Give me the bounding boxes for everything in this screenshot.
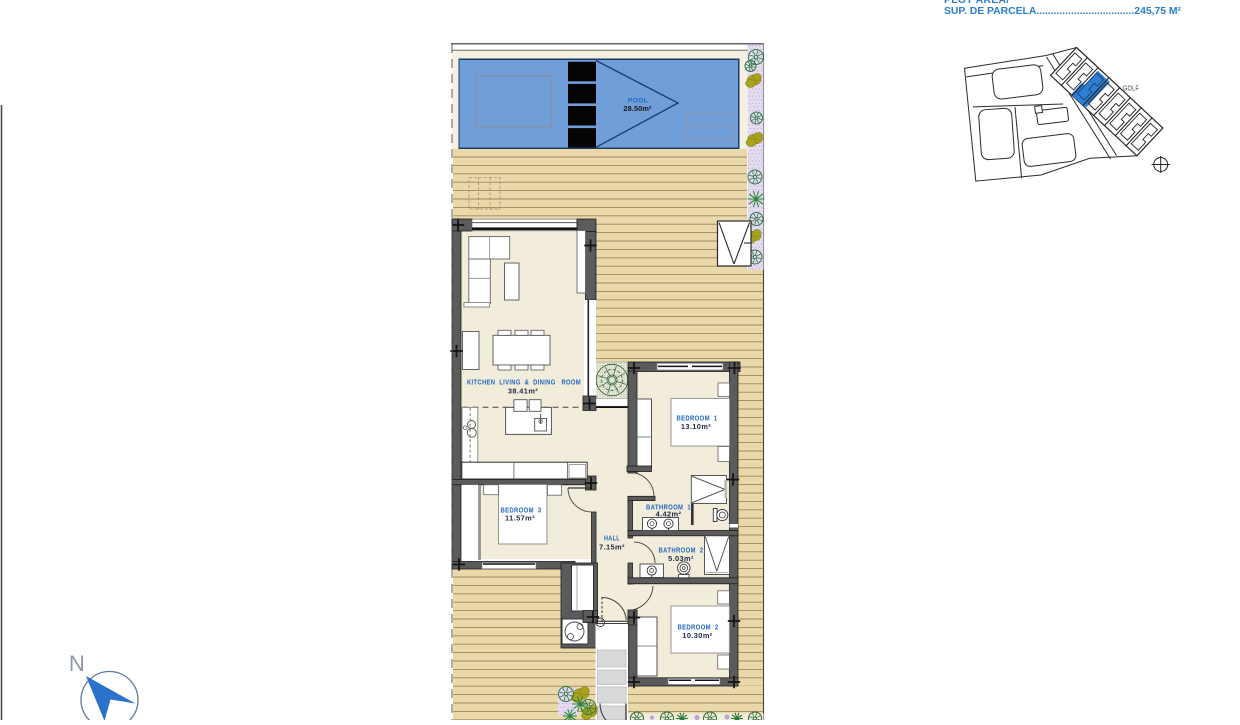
svg-text:GOLF: GOLF (1123, 86, 1139, 93)
svg-text:38.41m²: 38.41m² (508, 387, 538, 396)
svg-text:7.15m²: 7.15m² (599, 543, 625, 552)
svg-text:N: N (69, 651, 85, 676)
svg-text:28.50m²: 28.50m² (623, 104, 652, 113)
svg-text:SUP. DE PARCELA...............: SUP. DE PARCELA.........................… (944, 6, 1182, 17)
svg-text:11.57m²: 11.57m² (505, 514, 535, 523)
svg-text:13.10m²: 13.10m² (681, 422, 711, 431)
svg-text:5.03m²: 5.03m² (668, 554, 694, 563)
svg-text:HALL: HALL (604, 536, 620, 543)
svg-text:4.42m²: 4.42m² (656, 510, 682, 519)
svg-text:KITCHEN LIVING & DINING R: KITCHEN LIVING & DINING ROOM (467, 380, 581, 387)
svg-text:10.30m²: 10.30m² (682, 631, 712, 640)
